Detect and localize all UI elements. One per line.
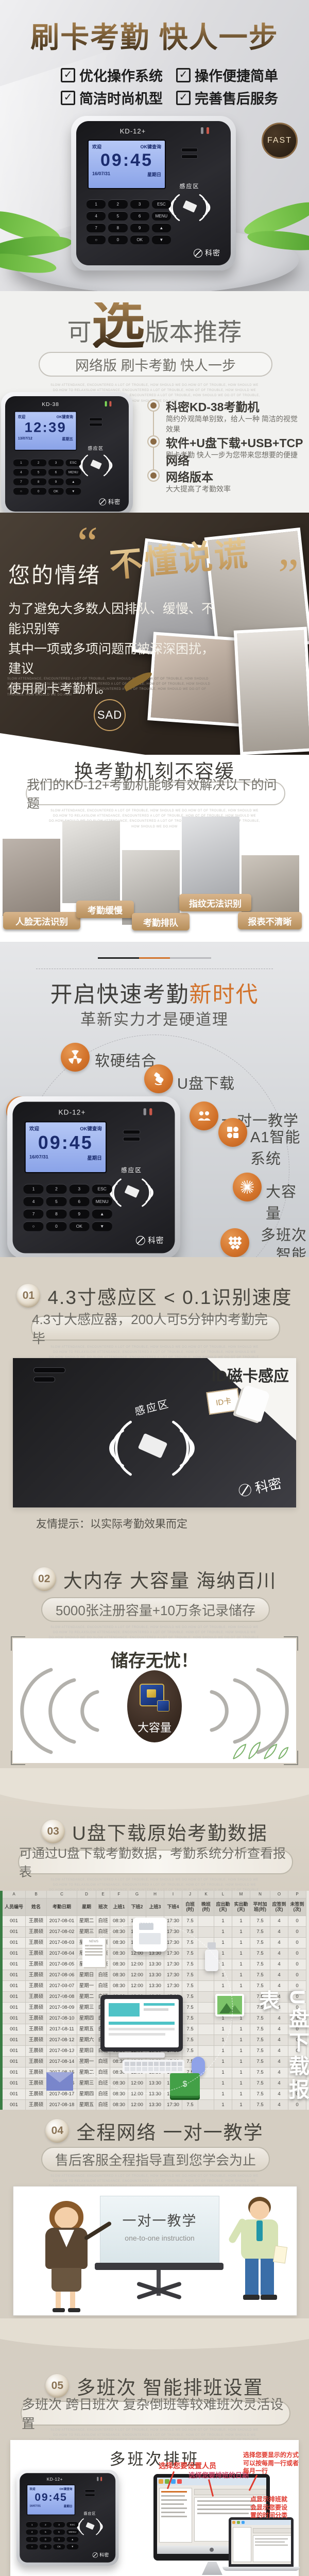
- spreadsheet-cell: 001: [3, 2089, 26, 2100]
- annotation-1: 选择您要设置人员: [159, 2461, 216, 2471]
- spreadsheet-cell: 001: [3, 2100, 26, 2110]
- spreadsheet-row: ABCDEFGHIJKLMNOP: [3, 1891, 309, 1899]
- newera-subtitle: 革新实力才是硬道理: [0, 1007, 309, 1029]
- brand-name: 科密: [99, 2552, 109, 2558]
- version-item-desc: 简约外观简单别致，给人一种 简洁的视觉效果: [166, 414, 304, 434]
- spreadsheet-cell: 王晨硕: [26, 1959, 47, 1970]
- version-item-desc: 刷卡考勤 快人一步为您带来您想要的便捷: [166, 450, 304, 460]
- device-key: 7: [13, 478, 29, 485]
- wave-decoration: [0, 1768, 309, 1809]
- device-speaker: [123, 1130, 141, 1141]
- device-keypad: 123ESC456MENU789▲○0OK▼: [24, 1184, 112, 1231]
- brand-name: 科密: [148, 1235, 164, 1246]
- filler-text: SLOW ATTENDANCE, ENCOUNTERED A LOT OF TR…: [7, 676, 213, 698]
- bullet-icon: [148, 470, 159, 481]
- device-key: ○: [24, 1222, 44, 1231]
- newera-device: KD-12+ 欢迎OK键查询 09:45 16/07/31星期日 感应区 123…: [7, 1096, 180, 1257]
- spreadsheet-cell: 王晨硕: [26, 1970, 47, 1981]
- check-icon: ✓: [61, 91, 75, 105]
- spreadsheet-cell: 0: [288, 1970, 306, 1981]
- projection-screen: 一对一教学 one-to-one instruction: [100, 2196, 219, 2265]
- spreadsheet-cell: 2017-08-17: [47, 2089, 77, 2100]
- vertical-usb-label: U盘下载报表: [252, 1990, 309, 2110]
- feature02-section: 02 大内存 大容量 海纳百川 5000张注册容量+10万条记录储存 SLOW …: [0, 1546, 309, 1768]
- spreadsheet-cell: 星期四: [77, 2089, 96, 2100]
- dashed-divider: [36, 969, 273, 969]
- hero-feature: 操作便捷简单: [195, 65, 278, 85]
- speaker-slots: [33, 1367, 65, 1382]
- brand-logo-icon: [194, 249, 202, 258]
- device-key: ▼: [152, 235, 171, 244]
- section-title: 4.3寸感应区 < 0.1识别速度: [47, 1282, 292, 1310]
- spreadsheet-cell: 2017-08-01: [47, 1916, 77, 1927]
- spreadsheet-cell: 王晨硕: [26, 1938, 47, 1948]
- signal-arcs-left: [20, 1667, 123, 1755]
- device-key: 5: [108, 211, 127, 221]
- spreadsheet-cell: 0: [288, 1948, 306, 1959]
- problem-chip: 考勤排队: [132, 913, 190, 930]
- spreadsheet-cell: 王晨硕: [26, 2046, 47, 2057]
- attendance-device: KD-12+ 欢迎OK键查询 09:45 16/07/31星期日 感应区 123…: [7, 1096, 180, 1257]
- attendance-device: KD-38 欢迎OK键查询 12:39 13/07/12星期五 感应区 123E…: [1, 392, 133, 513]
- spreadsheet-cell: 1: [214, 1916, 232, 1927]
- spreadsheet-cell: 上班1: [110, 1899, 128, 1916]
- spreadsheet-cell: 王晨硕: [26, 1927, 47, 1938]
- spreadsheet-cell: 1: [232, 2035, 250, 2046]
- device-key: ESC: [65, 459, 81, 466]
- device-key: 0: [40, 2544, 51, 2549]
- dashed-circle-overlay: [62, 1923, 233, 2094]
- spreadsheet-cell: G: [128, 1891, 146, 1899]
- collage-photo: [234, 626, 309, 755]
- device-key: 4: [24, 1196, 44, 1206]
- id-card-sense-label: ID磁卡感应: [212, 1363, 289, 1386]
- hero-section: 刷卡考勤 快人一步 ✓优化操作系统 ✓操作便捷简单 ✓简洁时尚机型 ✓完善售后服…: [0, 0, 309, 291]
- spreadsheet-cell: [198, 1916, 214, 1927]
- spreadsheet-cell: 星期五: [77, 2100, 96, 2110]
- usb-download-icon: [144, 1064, 173, 1093]
- teacher-cartoon: [38, 2201, 95, 2304]
- bullet-icon: [148, 436, 159, 447]
- f01-heading: 01 4.3寸感应区 < 0.1识别速度: [0, 1282, 309, 1310]
- spreadsheet-cell: L: [214, 1891, 232, 1899]
- multi-shift-icon: [220, 1228, 249, 1257]
- spreadsheet-cell: 1: [232, 2057, 250, 2067]
- screen-bar: [95, 2263, 224, 2270]
- device-key: MENU: [66, 2529, 78, 2535]
- device-key: 3: [130, 199, 149, 209]
- brand-logo-icon: [136, 1235, 145, 1245]
- device-key: 4: [87, 211, 106, 221]
- f01-pill: 4.3寸大感应器，200人可5分钟内考勤完毕: [31, 1316, 280, 1341]
- spreadsheet-cell: P: [288, 1891, 306, 1899]
- spreadsheet-cell: 1: [232, 2067, 250, 2078]
- device-brand: 科密: [136, 1235, 164, 1246]
- spreadsheet-cell: [198, 1927, 214, 1938]
- feature-label: 多班次智能 统计: [252, 1226, 307, 1257]
- sense-area-label: 感应区: [95, 1165, 168, 1174]
- device-key: MENU: [92, 1196, 112, 1206]
- chip-icon-small: [157, 1700, 169, 1711]
- section-number: 02: [32, 1567, 56, 1591]
- device-key: 7: [26, 2536, 38, 2542]
- spreadsheet-cell: K: [198, 1891, 214, 1899]
- f02-pill: 5000张注册容量+10万条记录储存: [41, 1597, 270, 1622]
- spreadsheet-cell: 12:00: [128, 2100, 146, 2110]
- feature-label: A1智能系统: [250, 1125, 309, 1168]
- spreadsheet-cell: 白班: [96, 2100, 110, 2110]
- problem-photo: [3, 839, 60, 916]
- spreadsheet-cell: 王晨硕: [26, 2024, 47, 2035]
- spreadsheet-cell: I: [164, 1891, 182, 1899]
- spreadsheet-cell: 1: [214, 2100, 232, 2110]
- feature05-section: 05 多班次 智能排班设置 多班次 跨日班次 复杂倒班等较难班次灵活设置 SLO…: [0, 2318, 309, 2576]
- device-model-label: KD-12+: [35, 1108, 110, 1116]
- device-key: OK: [69, 1222, 89, 1231]
- device-key: 9: [130, 223, 149, 232]
- lcd-time: 12:39: [18, 419, 73, 436]
- device-key: 4: [26, 2529, 38, 2535]
- spreadsheet-cell: 4: [270, 1927, 288, 1938]
- spreadsheet-cell: 王晨硕: [26, 1992, 47, 2003]
- device-key: 8: [108, 223, 127, 232]
- spreadsheet-cell: 001: [3, 1948, 26, 1959]
- lcd-welcome-text: 欢迎: [29, 2487, 35, 2491]
- hero-device: KD-12+ 欢迎OK键查询 09:45 16/07/31星期日 感应区 123…: [71, 116, 236, 270]
- spreadsheet-cell: [198, 2078, 214, 2089]
- spreadsheet-cell: 2017-08-03: [47, 1938, 77, 1948]
- spreadsheet-cell: 001: [3, 2013, 26, 2024]
- spreadsheet-cell: N: [250, 1891, 270, 1899]
- lcd-date: 16/07/31: [29, 1154, 48, 1161]
- lcd-query-text: OK键查询: [57, 414, 73, 419]
- f01-note: 友情提示：以实际考勤效果而定: [36, 1516, 187, 1531]
- lcd-weekday: 星期五: [62, 436, 73, 441]
- spreadsheet-cell: 王晨硕: [26, 2067, 47, 2078]
- f05-panel: 多班次排班 KD-12+ 欢迎OK键查询 09:45 16/07/31星期日 感…: [10, 2440, 299, 2576]
- spreadsheet-cell: 白班: [96, 1916, 110, 1927]
- spreadsheet-cell: 1: [214, 2089, 232, 2100]
- spreadsheet-cell: M: [232, 1891, 250, 1899]
- device-key: 6: [130, 211, 149, 221]
- wave-decoration: [0, 2318, 309, 2349]
- version-item-title: 网络版本: [166, 467, 213, 485]
- spreadsheet-cell: 王晨硕: [26, 1916, 47, 1927]
- spreadsheet-cell: 17:30: [164, 2100, 182, 2110]
- spreadsheet-cell: 星期二: [77, 1916, 96, 1927]
- spreadsheet-cell: A: [3, 1891, 26, 1899]
- newera-section: 开启快速考勤新时代 革新实力才是硬道理 软硬结合 U盘下载 快速感应 一对一教学…: [0, 942, 309, 1257]
- spreadsheet-cell: 王晨硕: [26, 1948, 47, 1959]
- device-brand: 科密: [93, 2552, 109, 2558]
- device-key: 5: [31, 468, 46, 476]
- emotion-prefix: 您的情绪: [8, 558, 101, 589]
- lcd-weekday: 星期日: [147, 171, 161, 178]
- f03-heading: 03 U盘下载原始考勤数据: [0, 1818, 309, 1845]
- chip-circle: 大容量: [127, 1670, 182, 1742]
- device-key: ▼: [65, 487, 81, 495]
- spreadsheet-cell: C: [47, 1891, 77, 1899]
- feature03-section: 03 U盘下载原始考勤数据 可通过U盘下载考勤数据，考勤系统分析查看报表 SLO…: [0, 1768, 309, 2110]
- leaves-decoration: [228, 1739, 290, 1760]
- device-key: 0: [46, 1222, 66, 1231]
- spreadsheet-cell: 星期三: [77, 1927, 96, 1938]
- annotation-4: 点显示排班就 会显示您要设 置的时间分类: [250, 2496, 300, 2520]
- device-key: OK: [53, 2544, 65, 2549]
- spreadsheet-cell: J: [182, 1891, 198, 1899]
- device-key: 2: [46, 1184, 66, 1194]
- spreadsheet-cell: 4: [270, 1948, 288, 1959]
- spreadsheet-cell: 考勤日期: [47, 1899, 77, 1916]
- spreadsheet-cell: 2017-08-02: [47, 1927, 77, 1938]
- device-speaker: [89, 418, 102, 427]
- spreadsheet-cell: H: [146, 1891, 164, 1899]
- spreadsheet-cell: 0: [288, 1938, 306, 1948]
- f05-device: KD-12+ 欢迎OK键查询 09:45 16/07/31星期日 感应区 123…: [16, 2470, 118, 2566]
- problem-chip: 考勤缓慢: [76, 901, 134, 918]
- f04-pill: 售后客服全程指导直到您学会为止: [41, 2147, 270, 2172]
- spreadsheet-cell: 001: [3, 2067, 26, 2078]
- spreadsheet-cell: 王晨硕: [26, 2057, 47, 2067]
- section-number: 03: [41, 1820, 65, 1843]
- section-title: U盘下载原始考勤数据: [72, 1818, 268, 1845]
- brand-logo-icon: [93, 2552, 98, 2558]
- device-key: 2: [108, 199, 127, 209]
- device-key: ▲: [92, 1209, 112, 1218]
- spreadsheet-cell: 1: [232, 1959, 250, 1970]
- spreadsheet-cell: 0: [288, 1916, 306, 1927]
- spreadsheet-cell: 人员编号: [3, 1899, 26, 1916]
- attendance-device: KD-12+ 欢迎OK键查询 09:45 16/07/31星期日 感应区 123…: [71, 116, 236, 270]
- quote-close: ”: [278, 549, 299, 602]
- check-icon: ✓: [176, 91, 191, 105]
- spreadsheet-cell: 1: [214, 2057, 232, 2067]
- spreadsheet-cell: 下班4: [164, 1899, 182, 1916]
- student-cartoon: [234, 2197, 285, 2307]
- lcd-date: 16/07/31: [92, 171, 110, 178]
- device-indicator-lights: [201, 127, 209, 134]
- f04-cartoon-panel: 一对一教学 one-to-one instruction: [13, 2186, 297, 2316]
- device-key: ▼: [92, 1222, 112, 1231]
- spreadsheet-cell: 7.5: [250, 1948, 270, 1959]
- spreadsheet-cell: 001: [3, 1981, 26, 1992]
- device-key: ESC: [92, 1184, 112, 1194]
- spreadsheet-cell: 应出勤 (天): [214, 1899, 232, 1916]
- spreadsheet-cell: 001: [3, 1938, 26, 1948]
- device-key: OK: [48, 487, 64, 495]
- device-key: 8: [46, 1209, 66, 1218]
- version-item-title: 科密KD-38考勤机: [166, 397, 259, 415]
- spreadsheet-cell: 2017-08-18: [47, 2100, 77, 2110]
- emotion-section: “ 不懂说谎 ” 您的情绪 为了避免大多数人因排队、缓慢、不能识别等 其中一项或…: [0, 513, 309, 755]
- versions-section: 可 选 版本推荐 网络版 刷卡考勤 快人一步 SLOW ATTENDANCE, …: [0, 291, 309, 513]
- spreadsheet-cell: 1: [232, 1938, 250, 1948]
- big-capacity-icon: [233, 1173, 262, 1201]
- brand-name: 科密: [205, 248, 220, 258]
- device-key: ▲: [152, 223, 171, 232]
- spreadsheet-cell: 王晨硕: [26, 1981, 47, 1992]
- section-number: 04: [45, 2119, 69, 2143]
- device-indicator-lights: [144, 1108, 152, 1115]
- spreadsheet-cell: 7.5: [250, 1927, 270, 1938]
- device-key: 8: [31, 478, 46, 485]
- sense-area-label: 感应区: [68, 445, 124, 451]
- f03-pill: 可通过U盘下载考勤数据，考勤系统分析查看报表: [18, 1850, 293, 1874]
- device-key: 3: [53, 2521, 65, 2527]
- device-key: 3: [48, 459, 64, 466]
- chip-label: 大容量: [127, 1719, 182, 1735]
- spreadsheet-cell: 1: [232, 1970, 250, 1981]
- spreadsheet-cell: 2017-08-14: [47, 2057, 77, 2067]
- spreadsheet-cell: 4: [270, 1916, 288, 1927]
- screen-title-cn: 一对一教学: [100, 2210, 219, 2230]
- spreadsheet-cell: 001: [3, 1916, 26, 1927]
- spreadsheet-cell: 1: [232, 1916, 250, 1927]
- device-key: ESC: [66, 2521, 78, 2527]
- lcd-date: 13/07/12: [18, 436, 32, 441]
- lcd-query-text: OK键查询: [140, 143, 161, 150]
- spreadsheet-cell: 1: [232, 1948, 250, 1959]
- hero-feature-row-2: ✓简洁时尚机型 ✓完善售后服务: [61, 88, 278, 108]
- problem-photo: [182, 817, 239, 904]
- palm-leaf-left: [0, 206, 82, 283]
- device-key: OK: [130, 235, 149, 244]
- device-indicator-lights: [97, 2477, 102, 2481]
- device-model-label: KD-12+: [97, 127, 169, 135]
- device-model-label: KD-38: [22, 401, 79, 408]
- spreadsheet-cell: 7.5: [250, 1916, 270, 1927]
- imac-stand: [202, 2562, 222, 2575]
- lcd-query-text: OK键查询: [59, 2487, 72, 2491]
- product-detail-page: 刷卡考勤 快人一步 ✓优化操作系统 ✓操作便捷简单 ✓简洁时尚机型 ✓完善售后服…: [0, 0, 309, 2576]
- device-key: 5: [46, 1196, 66, 1206]
- lcd-welcome-text: 欢迎: [18, 414, 25, 419]
- brand-logo-icon: [99, 498, 106, 505]
- spreadsheet-cell: 王晨硕: [26, 2078, 47, 2089]
- spreadsheet-cell: 星期三: [77, 2078, 96, 2089]
- check-icon: ✓: [176, 68, 191, 82]
- feature-label: 大容量: [266, 1180, 309, 1223]
- spreadsheet-cell: E: [96, 1891, 110, 1899]
- hero-feature: 简洁时尚机型: [79, 88, 163, 108]
- palm-leaf-right: [237, 204, 309, 276]
- f04-heading: 04 全程网络 一对一教学: [0, 2117, 309, 2145]
- spreadsheet-cell: 001: [3, 2078, 26, 2089]
- spreadsheet-cell: 实出勤 (天): [232, 1899, 250, 1916]
- spreadsheet-cell: [198, 2089, 214, 2100]
- spreadsheet-cell: 13:30: [146, 2100, 164, 2110]
- problem-chip: 指纹无法识别: [179, 894, 251, 911]
- device-model-label: KD-12+: [32, 2477, 77, 2482]
- device-key: MENU: [152, 211, 171, 221]
- device-brand: 科密: [99, 498, 121, 506]
- device-key: 1: [24, 1184, 44, 1194]
- spreadsheet-row: 人员编号姓名考勤日期星期班次上班1下班2上班3下班4白班 (时)晚班 (时)应出…: [3, 1899, 309, 1916]
- device-key: ○: [26, 2544, 38, 2549]
- device-key: 7: [24, 1209, 44, 1218]
- spreadsheet-cell: 1: [232, 2078, 250, 2089]
- feature-label: 软硬结合: [95, 1049, 157, 1071]
- feature01-section: 01 4.3寸感应区 < 0.1识别速度 4.3寸大感应器，200人可5分钟内考…: [0, 1257, 309, 1546]
- hero-feature: 优化操作系统: [79, 65, 163, 85]
- spreadsheet-cell: 上班3: [146, 1899, 164, 1916]
- device-key: ○: [13, 487, 29, 495]
- urgent-pill: 我们的KD-12+考勤机能够有效解决以下的问题: [26, 782, 285, 805]
- feature04-section: 04 全程网络 一对一教学 售后客服全程指导直到您学会为止 SLOW ATTEN…: [0, 2110, 309, 2318]
- spreadsheet-cell: 下班2: [128, 1899, 146, 1916]
- newera-title: 开启快速考勤新时代: [0, 977, 309, 1009]
- f05-pill: 多班次 跨日班次 复杂倒班等较难班次灵活设置: [21, 2401, 290, 2426]
- device-key: 6: [53, 2529, 65, 2535]
- spreadsheet-cell: 1: [232, 2024, 250, 2035]
- device-key: 1: [87, 199, 106, 209]
- device-key: 6: [48, 468, 64, 476]
- laptop-base: [222, 2567, 300, 2571]
- spreadsheet-cell: 001: [3, 1970, 26, 1981]
- mail-icon: [46, 2072, 73, 2091]
- spreadsheet-cell: 4: [270, 1959, 288, 1970]
- annotation-2: 选择您要排班的日期: [188, 2470, 249, 2480]
- spreadsheet-cell: 1: [214, 2078, 232, 2089]
- device-key: 8: [40, 2536, 51, 2542]
- spreadsheet-cell: 1: [214, 2067, 232, 2078]
- device-face: KD-12+ 欢迎OK键查询 09:45 16/07/31星期日 感应区 123…: [13, 1102, 175, 1253]
- hero-title: 刷卡考勤 快人一步: [0, 14, 309, 56]
- spreadsheet-cell: 王晨硕: [26, 2100, 47, 2110]
- spreadsheet-cell: 001: [3, 2003, 26, 2013]
- attendance-device: KD-12+ 欢迎OK键查询 09:45 16/07/31星期日 感应区 123…: [16, 2470, 118, 2566]
- section-title: 大内存 大容量 海纳百川: [63, 1565, 277, 1593]
- spreadsheet-cell: F: [110, 1891, 128, 1899]
- urgent-section: 换考勤机刻不容缓 我们的KD-12+考勤机能够有效解决以下的问题 SLOW AT…: [0, 755, 309, 942]
- spreadsheet-cell: 1: [232, 1927, 250, 1938]
- brand-name: 科密: [108, 498, 121, 506]
- f02-panel: 储存无忧！ 大容量: [13, 1638, 296, 1763]
- device-speaker: [85, 2489, 95, 2496]
- hero-feature: 完善售后服务: [195, 88, 278, 108]
- versions-title: 可 选 版本推荐: [0, 302, 309, 348]
- device-key: 6: [69, 1196, 89, 1206]
- spreadsheet-cell: 1: [214, 1927, 232, 1938]
- spreadsheet-cell: 白班: [96, 2089, 110, 2100]
- spreadsheet-cell: 001: [3, 2024, 26, 2035]
- spreadsheet-cell: 08:30: [110, 2100, 128, 2110]
- spreadsheet-cell: 7.5: [250, 1970, 270, 1981]
- lcd-date: 16/07/31: [29, 2504, 41, 2508]
- device-key: 2: [31, 459, 46, 466]
- spreadsheet-cell: 白班 (时): [182, 1899, 198, 1916]
- a1-system-icon: [218, 1118, 247, 1147]
- device-key: ▲: [66, 2536, 78, 2542]
- device-key: 9: [48, 478, 64, 485]
- spreadsheet-cell: 星期: [77, 1899, 96, 1916]
- device-key: 4: [13, 468, 29, 476]
- problem-chip: 人脸无法识别: [3, 912, 80, 929]
- spreadsheet-cell: 0: [288, 1927, 306, 1938]
- bullet-icon: [148, 400, 159, 411]
- spreadsheet-cell: 1: [232, 2089, 250, 2100]
- lcd-welcome-text: 欢迎: [29, 1125, 39, 1132]
- device-face: KD-12+ 欢迎OK键查询 09:45 16/07/31星期日 感应区 123…: [76, 121, 231, 265]
- spreadsheet-cell: 7.5: [182, 2100, 198, 2110]
- device-face: KD-12+ 欢迎OK键查询 09:45 16/07/31星期日 感应区 123…: [20, 2473, 115, 2563]
- spreadsheet-cell: 王晨硕: [26, 2035, 47, 2046]
- kd38-device: KD-38 欢迎OK键查询 12:39 13/07/12星期五 感应区 123E…: [1, 392, 133, 513]
- spreadsheet-cell: [198, 2100, 214, 2110]
- spreadsheet-cell: 1: [232, 2100, 250, 2110]
- spreadsheet-cell: 晚班 (时): [198, 1899, 214, 1916]
- spreadsheet-cell: 1: [214, 1938, 232, 1948]
